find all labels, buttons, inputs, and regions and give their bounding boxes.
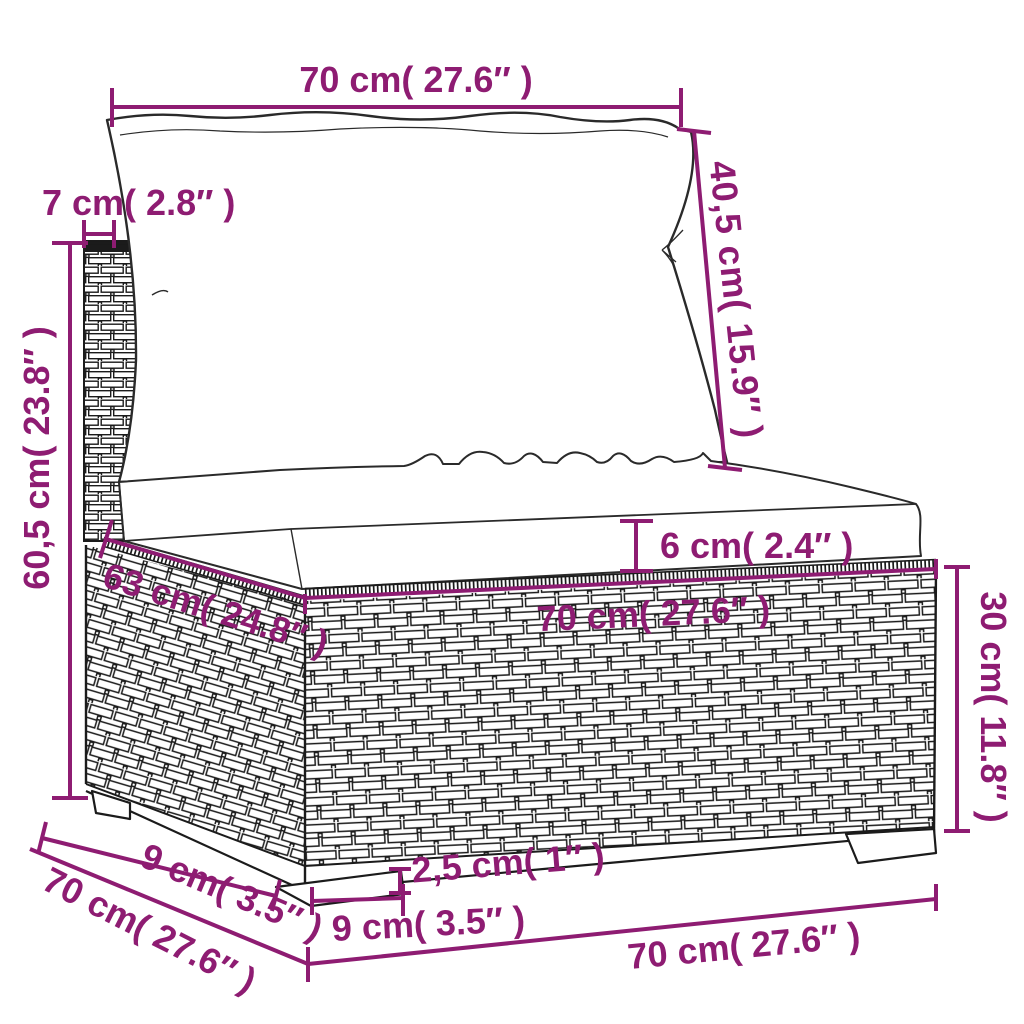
svg-text:70 cm( 27.6″ ): 70 cm( 27.6″ )	[299, 59, 532, 100]
svg-text:30 cm( 11.8″ ): 30 cm( 11.8″ )	[973, 591, 1014, 822]
svg-text:7 cm( 2.8″ ): 7 cm( 2.8″ )	[42, 182, 235, 223]
svg-text:60,5 cm( 23.8″ ): 60,5 cm( 23.8″ )	[16, 326, 57, 589]
svg-text:6 cm( 2.4″ ): 6 cm( 2.4″ )	[660, 525, 853, 566]
